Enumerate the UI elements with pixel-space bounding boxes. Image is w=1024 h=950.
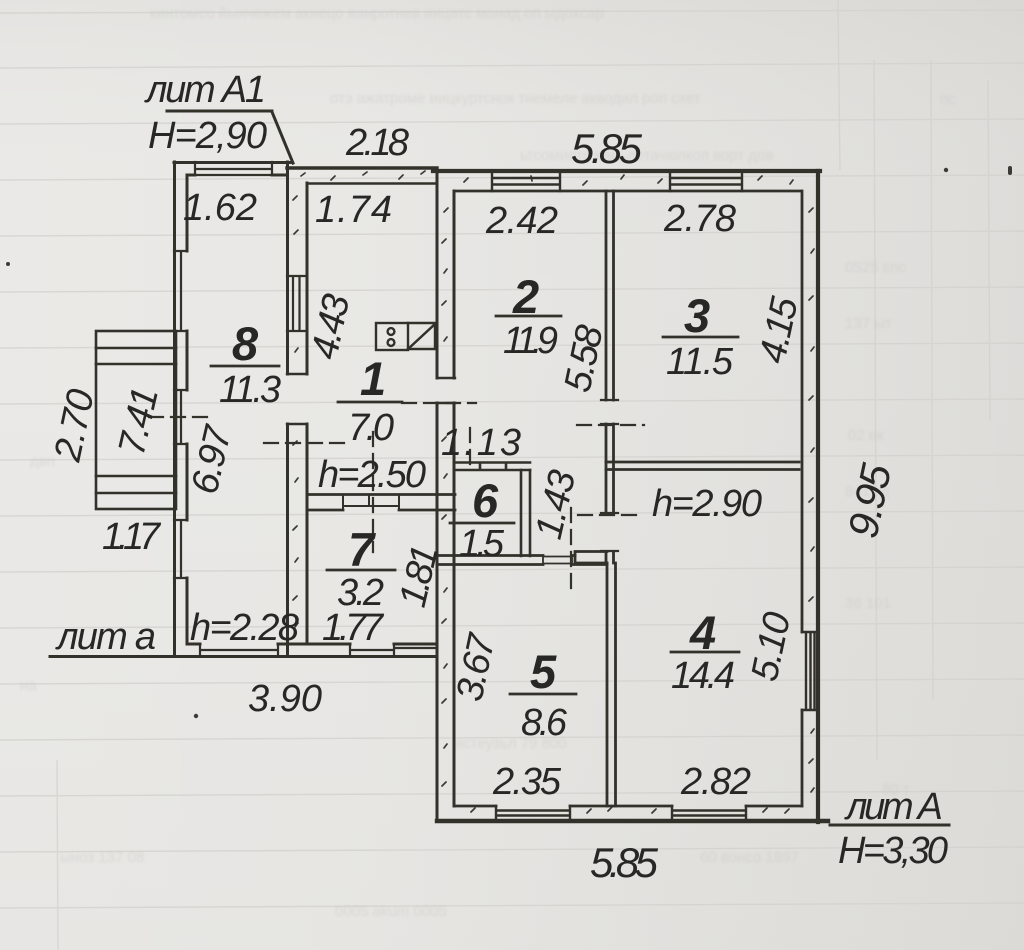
svg-text:0005 akum 0005: 0005 akum 0005 xyxy=(335,903,447,920)
svg-text:2.35: 2.35 xyxy=(492,761,562,803)
svg-text:2.78: 2.78 xyxy=(663,198,736,240)
svg-text:7.0: 7.0 xyxy=(348,407,394,449)
svg-text:h=2.90: h=2.90 xyxy=(652,483,762,525)
svg-text:лит а: лит а xyxy=(55,616,156,658)
svg-text:на: на xyxy=(20,677,37,694)
svg-text:3.90: 3.90 xyxy=(248,678,322,720)
svg-text:8.6: 8.6 xyxy=(521,702,568,744)
svg-text:11.5: 11.5 xyxy=(666,341,734,383)
svg-text:отэ ажатроме иицкуртснок тн: отэ ажатроме иицкуртснок тнемеле акводил… xyxy=(330,90,701,107)
svg-text:1.62: 1.62 xyxy=(183,187,257,229)
svg-text:14.4: 14.4 xyxy=(671,655,735,697)
svg-text:h=2.28: h=2.28 xyxy=(190,607,299,649)
svg-text:h=2.50: h=2.50 xyxy=(318,454,426,496)
svg-text:02 вк: 02 вк xyxy=(848,427,884,444)
svg-text:лит А1: лит А1 xyxy=(144,69,266,111)
svg-text:2: 2 xyxy=(512,270,539,323)
svg-text:ыноз 137 08: ыноз 137 08 xyxy=(60,849,144,866)
svg-text:1.74: 1.74 xyxy=(315,189,392,231)
svg-text:5.85: 5.85 xyxy=(571,125,643,172)
svg-text:36 101: 36 101 xyxy=(845,595,891,612)
svg-text:6: 6 xyxy=(472,474,499,527)
svg-text:1.13: 1.13 xyxy=(441,422,521,464)
svg-text:1: 1 xyxy=(360,352,386,405)
svg-text:137 ыт: 137 ыт xyxy=(845,315,892,332)
svg-text:11.9: 11.9 xyxy=(503,320,558,362)
svg-text:2.82: 2.82 xyxy=(680,761,751,803)
svg-text:11.3: 11.3 xyxy=(219,369,281,411)
svg-text:пс: пс xyxy=(940,91,956,108)
svg-text:лит А: лит А xyxy=(844,786,943,828)
svg-text:60 вонсо 1897: 60 вонсо 1897 xyxy=(700,849,799,866)
svg-text:1.5: 1.5 xyxy=(459,523,505,565)
svg-text:Н=2,90: Н=2,90 xyxy=(148,115,267,157)
svg-text:2.42: 2.42 xyxy=(485,200,558,242)
svg-text:5: 5 xyxy=(530,645,557,698)
svg-text:кинтомсо йынчежем акнецо яа: кинтомсо йынчежем акнецо яанротнев иицат… xyxy=(150,5,604,22)
svg-text:7: 7 xyxy=(348,523,376,576)
svg-text:0525 snc: 0525 snc xyxy=(845,259,906,276)
svg-text:8: 8 xyxy=(232,317,259,370)
svg-text:5.85: 5.85 xyxy=(590,839,659,886)
svg-text:3: 3 xyxy=(684,289,710,342)
svg-text:Н=3,30: Н=3,30 xyxy=(838,830,948,872)
svg-text:1.17: 1.17 xyxy=(102,516,162,558)
svg-text:4: 4 xyxy=(689,606,716,659)
svg-text:ьтсомиотс яаньлетачюлкоп вор: ьтсомиотс яаньлетачюлкоп ворт дов xyxy=(520,147,773,164)
svg-text:2.18: 2.18 xyxy=(345,122,409,164)
svg-text:1.77: 1.77 xyxy=(322,607,385,649)
